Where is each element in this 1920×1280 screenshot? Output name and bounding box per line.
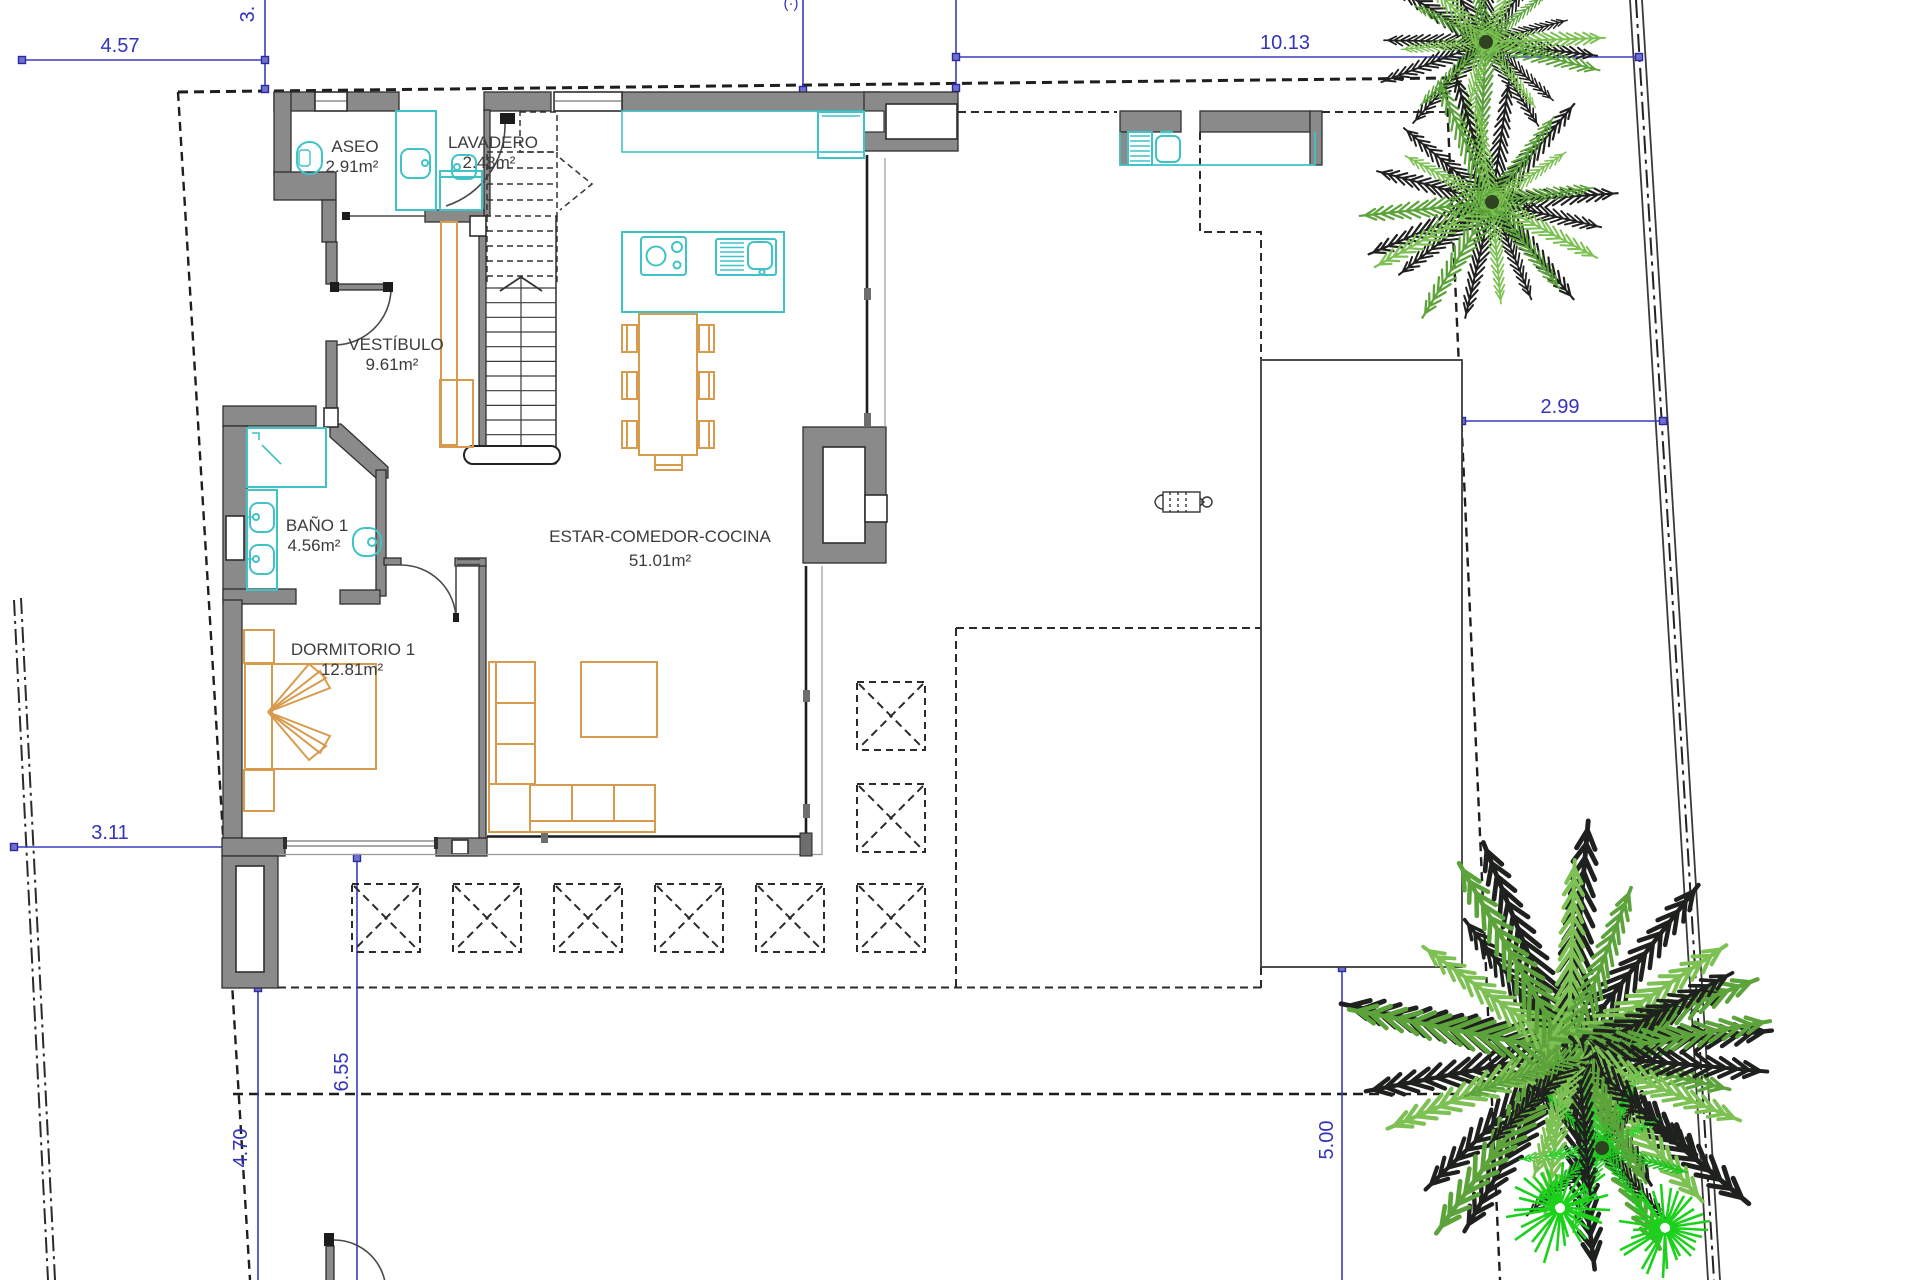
svg-text:2.48m²: 2.48m² (463, 153, 516, 172)
svg-text:LAVADERO: LAVADERO (448, 133, 538, 152)
svg-text:4.70: 4.70 (230, 1129, 252, 1168)
svg-text:VESTÍBULO: VESTÍBULO (348, 335, 443, 354)
svg-text:BAÑO 1: BAÑO 1 (286, 516, 348, 535)
svg-text:4.56m²: 4.56m² (288, 536, 341, 555)
svg-text:ESTAR-COMEDOR-COCINA: ESTAR-COMEDOR-COCINA (549, 527, 771, 546)
svg-text:9.61m²: 9.61m² (366, 355, 419, 374)
svg-text:2.91m²: 2.91m² (326, 157, 379, 176)
svg-text:6.55: 6.55 (331, 1053, 353, 1092)
svg-text:51.01m²: 51.01m² (629, 551, 692, 570)
svg-text:DORMITORIO 1: DORMITORIO 1 (291, 640, 415, 659)
svg-text:4.57: 4.57 (101, 35, 140, 57)
svg-text:12.81m²: 12.81m² (321, 660, 384, 679)
svg-text:(·): (·) (784, 0, 799, 12)
svg-text:10.13: 10.13 (1260, 32, 1310, 54)
svg-text:2.99: 2.99 (1541, 396, 1580, 418)
svg-text:5.00: 5.00 (1316, 1121, 1338, 1160)
svg-text:3.11: 3.11 (91, 822, 128, 844)
svg-text:3.: 3. (237, 6, 259, 23)
svg-text:ASEO: ASEO (331, 137, 378, 156)
